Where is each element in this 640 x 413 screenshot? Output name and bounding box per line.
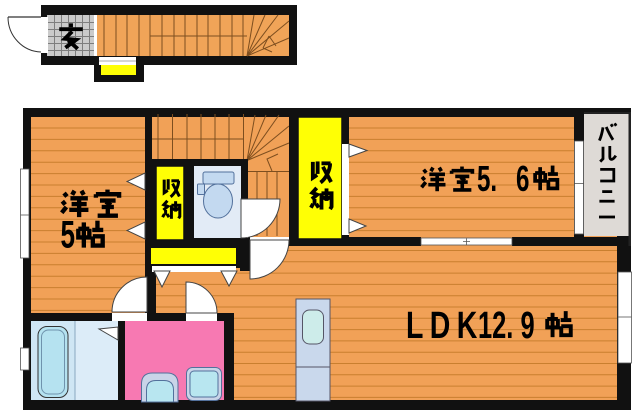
svg-text:6: 6 [516, 159, 529, 199]
svg-text:12. 9: 12. 9 [478, 304, 535, 346]
svg-text:5.: 5. [477, 159, 497, 199]
svg-text:LDK: LDK [406, 305, 484, 347]
svg-text:5: 5 [61, 213, 76, 256]
